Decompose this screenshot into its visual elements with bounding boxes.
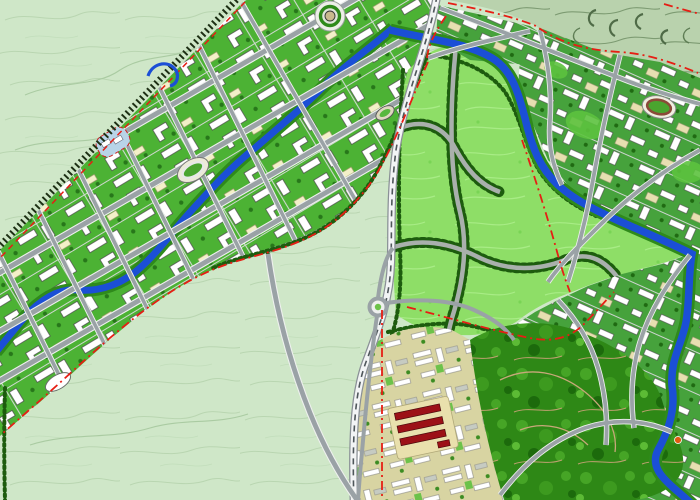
roundabout [370, 299, 387, 316]
map-canvas [0, 0, 700, 500]
circular-plaza [315, 1, 345, 31]
orange-marker [675, 437, 682, 444]
plaza-center [325, 11, 335, 21]
master-plan-map [0, 0, 700, 500]
roundabout-island [375, 304, 381, 310]
